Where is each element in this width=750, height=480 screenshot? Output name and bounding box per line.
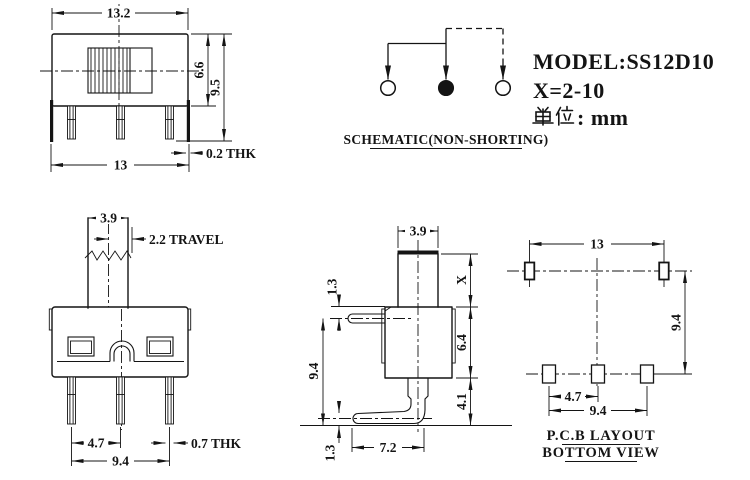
- dim-pin-thickness: 0.7 THK: [151, 436, 242, 451]
- dim-label: 9.4: [590, 403, 607, 418]
- dim-knob-height: X: [441, 254, 478, 307]
- dim-tab-thickness: 0.2 THK: [171, 146, 257, 161]
- dim-label: 13: [114, 158, 128, 173]
- terminal-common: [439, 81, 454, 96]
- dim-label: 9.4: [306, 362, 321, 379]
- travel-view: 3.9 2.2 TRAVEL: [49, 211, 241, 469]
- side-lug: [330, 307, 412, 323]
- front-pins: [68, 106, 174, 139]
- tab-slot-left: [525, 263, 535, 280]
- dim-pin-base: 1.3: [323, 401, 340, 461]
- dim-pcb-row-gap: 9.4: [656, 271, 692, 374]
- dim-travel-knob-width: 3.9: [88, 211, 128, 226]
- dim-front-width-top: 13.2: [52, 6, 188, 31]
- side-view: 3.9 1.3 X: [300, 224, 512, 462]
- dim-pcb-tab-span: 13: [530, 237, 665, 252]
- unit-chinese-glyph-wei: [557, 107, 574, 126]
- dim-label: 2.2 TRAVEL: [149, 232, 224, 247]
- pin-pad-3: [641, 365, 654, 383]
- slider-knob: [88, 48, 152, 93]
- dim-travel: 2.2 TRAVEL: [94, 227, 224, 253]
- dim-label: 6.6: [192, 61, 207, 78]
- terminal-2: [496, 81, 511, 96]
- dim-label: 1.3: [323, 444, 338, 461]
- x-range-label: X=2-10: [533, 78, 605, 103]
- dim-label: X: [454, 275, 469, 285]
- unit-label: : mm: [577, 105, 628, 130]
- pin-pad-2: [592, 365, 605, 383]
- dim-label: 3.9: [100, 211, 117, 226]
- dim-label: 7.2: [380, 440, 397, 455]
- bent-pin: [353, 378, 428, 424]
- tab-slot-right: [659, 263, 669, 280]
- schematic-caption: SCHEMATIC(NON-SHORTING): [344, 132, 549, 147]
- dim-label: 4.7: [565, 389, 582, 404]
- dim-label: 9.4: [669, 314, 684, 331]
- technical-drawing-page: 13.2 6.6 9.5 0.2 THK 13: [0, 0, 750, 480]
- dim-label: 1.3: [325, 278, 340, 295]
- dim-pin-reach: 7.2: [352, 428, 424, 455]
- dim-label: 9.4: [112, 453, 129, 468]
- pin-pad-1: [543, 365, 556, 383]
- dim-label: 0.7 THK: [191, 436, 242, 451]
- info-block: MODEL:SS12D10 X=2-10 : mm: [533, 49, 714, 130]
- pcb-caption-line1: P.C.B LAYOUT: [547, 428, 656, 444]
- dim-label: 6.4: [454, 334, 469, 351]
- dim-label: 4.7: [88, 435, 105, 450]
- front-view: 13.2 6.6 9.5 0.2 THK 13: [40, 4, 257, 173]
- schematic-view: SCHEMATIC(NON-SHORTING): [344, 29, 549, 149]
- pcb-view: 13 9.4 4.7 9.4 P.C.B LAYOUT BOTTOM VIEW: [507, 237, 692, 462]
- model-label: MODEL:SS12D10: [533, 49, 714, 74]
- dim-side-body-height: 6.4: [454, 307, 478, 378]
- dim-label: 13: [590, 237, 604, 252]
- dim-pin-drop: 4.1: [454, 378, 471, 426]
- dim-front-width-bottom: 13: [51, 144, 189, 173]
- dim-front-total-height: 9.5: [176, 34, 232, 141]
- left-mount-tab: [50, 100, 53, 142]
- dim-label: 4.1: [454, 393, 469, 410]
- pcb-caption-line2: BOTTOM VIEW: [542, 445, 659, 461]
- right-mount-tab: [187, 100, 190, 142]
- travel-pins: [68, 377, 174, 424]
- dim-label: 3.9: [410, 224, 427, 239]
- dim-label: 9.5: [208, 79, 223, 96]
- dim-label: 13.2: [107, 6, 131, 21]
- slide-switch-drawing: 13.2 6.6 9.5 0.2 THK 13: [0, 0, 750, 480]
- dim-label: 0.2 THK: [206, 146, 257, 161]
- dim-side-overall: 9.4: [306, 319, 323, 426]
- unit-chinese-glyph-dan: [533, 108, 553, 126]
- terminal-1: [381, 81, 396, 96]
